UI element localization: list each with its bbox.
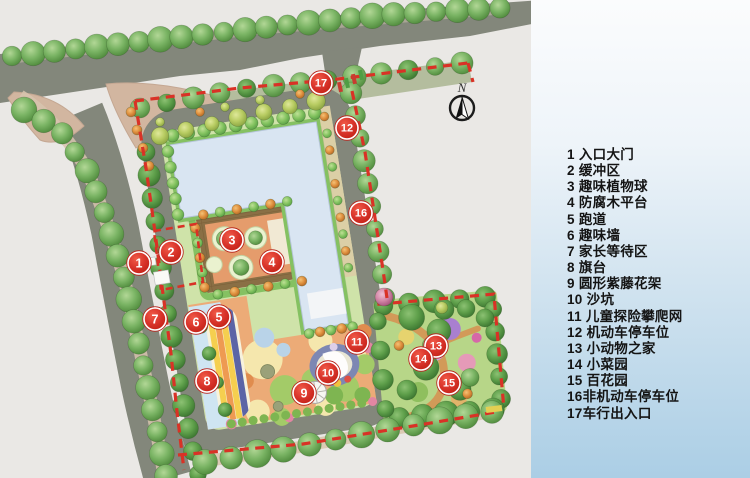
tree-icon xyxy=(221,103,230,112)
legend-item: 6 趣味墙 xyxy=(567,228,683,244)
tree-icon xyxy=(149,441,174,466)
north-arrow: N xyxy=(450,80,474,120)
tree-icon xyxy=(161,326,183,348)
tree-icon xyxy=(382,2,406,26)
tree-icon xyxy=(277,15,297,35)
legend-item: 10 沙坑 xyxy=(567,292,683,308)
map-marker: 7 xyxy=(143,307,167,331)
map-marker: 3 xyxy=(220,228,244,252)
legend-item: 5 跑道 xyxy=(567,212,683,228)
map-marker: 4 xyxy=(260,250,284,274)
tree-icon xyxy=(341,8,362,29)
marker-number: 16 xyxy=(355,208,367,220)
legend-item: 13 小动物之家 xyxy=(567,341,683,357)
legend-item: 12 机动车停车位 xyxy=(567,325,683,341)
legend-item: 14 小菜园 xyxy=(567,357,683,373)
tree-icon xyxy=(99,222,124,247)
legend-item: 3 趣味植物球 xyxy=(567,179,683,195)
marker-number: 11 xyxy=(351,337,363,349)
tree-icon xyxy=(229,109,247,127)
tree-icon xyxy=(126,107,136,117)
marker-number: 4 xyxy=(269,256,276,270)
tree-icon xyxy=(170,25,194,49)
marker-number: 5 xyxy=(216,311,223,325)
building-notch xyxy=(307,288,347,319)
legend-item: 7 家长等待区 xyxy=(567,244,683,260)
tree-icon xyxy=(151,127,169,145)
marker-number: 10 xyxy=(322,368,334,380)
legend-item: 2 缓冲区 xyxy=(567,163,683,179)
marker-number: 9 xyxy=(301,387,308,401)
legend-item: 15 百花园 xyxy=(567,373,683,389)
tree-icon xyxy=(282,99,297,114)
tree-icon xyxy=(116,287,142,313)
map-marker: 11 xyxy=(345,330,369,354)
marker-number: 14 xyxy=(415,354,428,366)
marker-number: 12 xyxy=(341,123,353,135)
marker-number: 8 xyxy=(204,375,211,389)
north-needle-left xyxy=(456,97,463,119)
north-label: N xyxy=(457,80,468,95)
legend-item: 9 圆形紫藤花架 xyxy=(567,276,683,292)
tree-icon xyxy=(375,288,393,306)
tree-icon xyxy=(156,118,165,127)
map-marker: 5 xyxy=(207,305,231,329)
tree-icon xyxy=(106,244,129,267)
map-marker: 6 xyxy=(184,310,208,334)
marker-number: 1 xyxy=(136,257,143,271)
marker-number: 6 xyxy=(193,316,200,330)
tree-icon xyxy=(136,375,160,399)
tree-icon xyxy=(165,350,185,370)
site-plan-page: 1234567891011121314151617 N 1 入口大门2 缓冲区3… xyxy=(0,0,750,478)
tree-icon xyxy=(192,24,214,46)
map-marker: 14 xyxy=(409,347,433,371)
map-marker: 15 xyxy=(437,371,461,395)
north-needle-right xyxy=(462,97,469,119)
tree-icon xyxy=(128,333,150,355)
tree-icon xyxy=(318,9,341,32)
tree-icon xyxy=(256,96,265,105)
tree-icon xyxy=(256,104,272,120)
marker-number: 13 xyxy=(430,341,442,353)
tree-icon xyxy=(178,122,194,138)
tree-icon xyxy=(178,418,199,439)
tree-icon xyxy=(468,0,490,20)
legend-item: 1 入口大门 xyxy=(567,147,683,163)
legend-list: 1 入口大门2 缓冲区3 趣味植物球4 防腐木平台5 跑道6 趣味墙7 家长等待… xyxy=(567,147,683,422)
tree-icon xyxy=(196,108,205,117)
legend-item: 16非机动车停车位 xyxy=(567,389,683,405)
tree-icon xyxy=(134,356,154,376)
legend-item: 4 防腐木平台 xyxy=(567,195,683,211)
tree-icon xyxy=(107,33,130,56)
tree-icon xyxy=(404,2,426,24)
tree-icon xyxy=(359,3,385,29)
tree-icon xyxy=(94,203,114,223)
tree-icon xyxy=(147,26,173,52)
tree-icon xyxy=(214,22,234,42)
tree-icon xyxy=(366,220,383,237)
tree-icon xyxy=(84,34,109,59)
tree-icon xyxy=(426,2,446,22)
tree-icon xyxy=(205,117,219,131)
tree-icon xyxy=(490,0,510,18)
tree-icon xyxy=(2,46,22,66)
tree-icon xyxy=(357,173,378,194)
legend-item: 8 旗台 xyxy=(567,260,683,276)
tree-icon xyxy=(147,422,167,442)
legend-panel: 1 入口大门2 缓冲区3 趣味植物球4 防腐木平台5 跑道6 趣味墙7 家长等待… xyxy=(531,0,750,478)
tree-icon xyxy=(51,123,73,145)
tree-icon xyxy=(122,310,146,334)
tree-icon xyxy=(65,142,85,162)
tree-icon xyxy=(296,10,321,35)
tree-icon xyxy=(66,39,86,59)
marker-number: 3 xyxy=(229,234,236,248)
marker-number: 15 xyxy=(443,378,455,390)
tree-icon xyxy=(141,399,163,421)
legend-item: 17车行出入口 xyxy=(567,406,683,422)
map-marker: 12 xyxy=(335,116,359,140)
map-marker: 8 xyxy=(195,369,219,393)
tree-icon xyxy=(296,90,305,99)
tree-icon xyxy=(85,181,107,203)
tree-icon xyxy=(182,87,204,109)
tree-icon xyxy=(75,159,99,183)
tree-icon xyxy=(243,440,271,468)
tree-icon xyxy=(142,188,163,209)
map-marker: 9 xyxy=(292,381,316,405)
tree-icon xyxy=(255,16,277,38)
marker-number: 7 xyxy=(152,313,159,327)
legend-item: 11 儿童探险攀爬网 xyxy=(567,309,683,325)
map-marker: 10 xyxy=(316,361,340,385)
tree-icon xyxy=(445,0,469,23)
map-marker: 17 xyxy=(309,71,333,95)
tree-icon xyxy=(21,41,45,65)
tree-icon xyxy=(129,31,150,52)
map-marker: 1 xyxy=(127,251,151,275)
tree-icon xyxy=(43,40,65,62)
marker-number: 17 xyxy=(315,78,327,90)
map-marker: 2 xyxy=(159,240,183,264)
tree-icon xyxy=(233,17,257,41)
marker-number: 2 xyxy=(168,246,175,260)
tree-icon xyxy=(271,437,297,463)
map-marker: 16 xyxy=(349,201,373,225)
